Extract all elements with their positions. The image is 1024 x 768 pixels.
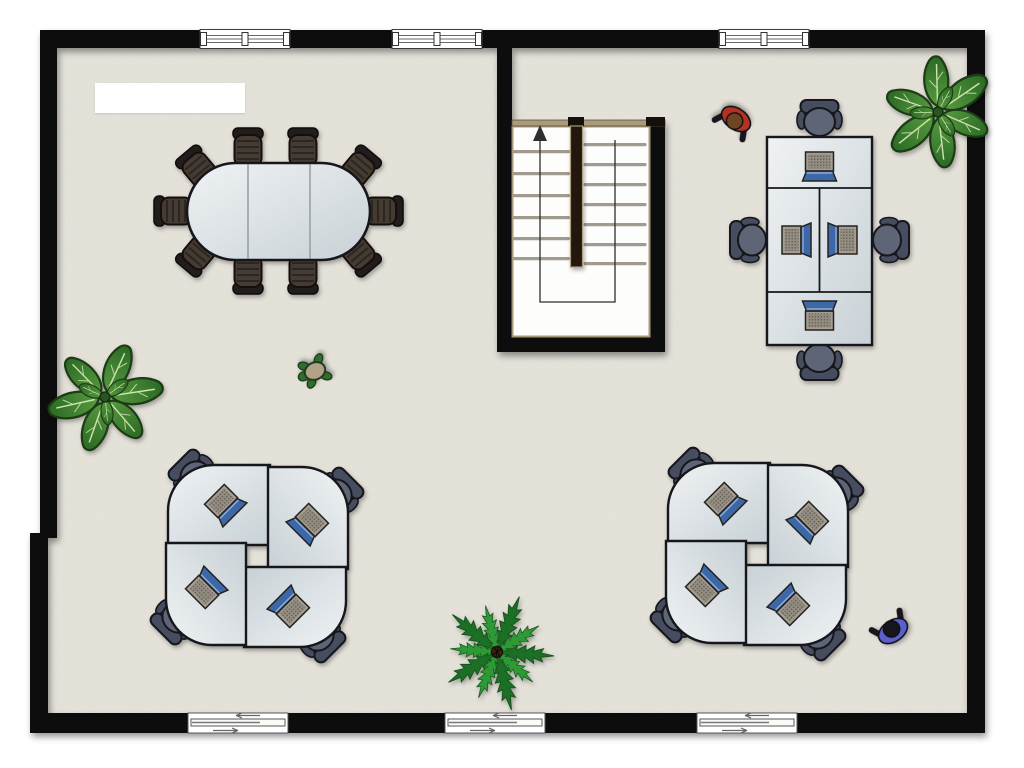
stair-divider bbox=[571, 126, 583, 267]
stairwell-left-wall[interactable] bbox=[497, 48, 512, 352]
window-top-middle[interactable] bbox=[392, 30, 482, 49]
conference-table[interactable] bbox=[187, 163, 370, 260]
stairwell-right-wall[interactable] bbox=[650, 120, 665, 352]
sliding-door-bottom-middle[interactable] bbox=[445, 713, 545, 733]
stair-top-trim bbox=[512, 120, 665, 126]
floorplan-canvas bbox=[0, 0, 1024, 768]
label-box[interactable] bbox=[95, 83, 245, 113]
window-top-left[interactable] bbox=[200, 30, 290, 49]
sliding-door-bottom-right[interactable] bbox=[697, 713, 797, 733]
floorplan-drawing bbox=[0, 0, 1024, 768]
stair-newel-post bbox=[646, 117, 665, 126]
sliding-door-bottom-left[interactable] bbox=[188, 713, 288, 733]
window-top-right[interactable] bbox=[719, 30, 809, 49]
stair-newel-post bbox=[568, 117, 584, 126]
stairwell-bottom-wall[interactable] bbox=[497, 337, 665, 352]
